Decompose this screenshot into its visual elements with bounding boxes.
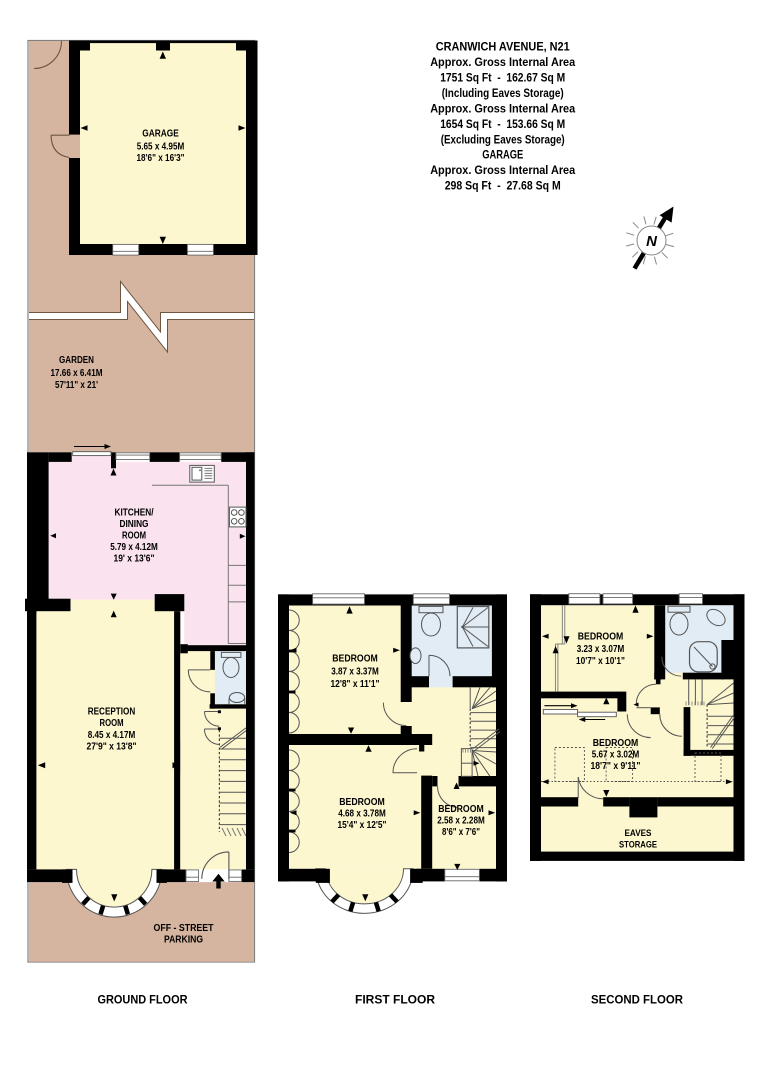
svg-text:5.79 x 4.12M: 5.79 x 4.12M [110,541,158,553]
svg-text:2.58 x 2.28M: 2.58 x 2.28M [437,815,485,827]
svg-text:EAVES: EAVES [625,828,652,839]
svg-text:N: N [646,233,658,250]
svg-text:FIRST FLOOR: FIRST FLOOR [355,993,435,1007]
svg-text:GARAGE: GARAGE [142,128,179,140]
svg-text:GROUND FLOOR: GROUND FLOOR [98,993,188,1007]
svg-text:BEDROOM: BEDROOM [438,803,484,815]
svg-text:5.67 x 3.02M: 5.67 x 3.02M [592,749,640,761]
svg-text:DINING: DINING [120,518,149,530]
svg-text:1654 Sq Ft - 153.66 Sq M: 1654 Sq Ft - 153.66 Sq M [440,119,565,131]
svg-text:Approx. Gross Internal Area: Approx. Gross Internal Area [430,165,576,177]
svg-text:10'7" x 10'1": 10'7" x 10'1" [576,655,625,667]
svg-text:3.87 x 3.37M: 3.87 x 3.37M [331,666,379,678]
svg-text:GARDEN: GARDEN [59,354,94,366]
svg-text:1751 Sq Ft - 162.67 Sq M: 1751 Sq Ft - 162.67 Sq M [440,73,565,85]
svg-text:BEDROOM: BEDROOM [593,737,639,749]
svg-text:12'8" x 11'1": 12'8" x 11'1" [331,678,380,690]
svg-text:Approx. Gross Internal Area: Approx. Gross Internal Area [430,57,576,69]
svg-text:17.66 x 6.41M: 17.66 x 6.41M [51,367,103,379]
svg-text:RECEPTION: RECEPTION [88,706,136,718]
svg-text:15'4" x 12'5": 15'4" x 12'5" [338,819,387,831]
svg-text:BEDROOM: BEDROOM [332,653,378,665]
svg-text:KITCHEN/: KITCHEN/ [115,507,154,519]
svg-text:SECOND FLOOR: SECOND FLOOR [591,993,683,1007]
svg-text:8'6" x 7'6": 8'6" x 7'6" [442,826,480,838]
svg-text:57'11" x 21': 57'11" x 21' [55,379,98,391]
svg-text:5.65 x 4.95M: 5.65 x 4.95M [137,140,185,152]
svg-text:18'7" x 9'11": 18'7" x 9'11" [591,760,641,772]
svg-text:4.68 x 3.78M: 4.68 x 3.78M [338,808,386,820]
svg-text:OFF - STREET: OFF - STREET [154,922,214,934]
svg-text:27'9" x 13'8": 27'9" x 13'8" [87,741,137,753]
svg-text:BEDROOM: BEDROOM [339,796,385,808]
svg-text:ROOM: ROOM [100,717,124,729]
svg-text:298 Sq Ft - 27.68 Sq M: 298 Sq Ft - 27.68 Sq M [445,181,561,193]
svg-text:STORAGE: STORAGE [619,840,657,851]
svg-text:3.23 x 3.07M: 3.23 x 3.07M [577,643,625,655]
svg-text:(Excluding Eaves Storage): (Excluding Eaves Storage) [441,134,565,146]
svg-text:19' x 13'6": 19' x 13'6" [114,553,155,565]
svg-text:ROOM: ROOM [122,530,146,542]
svg-text:18'6" x 16'3": 18'6" x 16'3" [137,152,185,164]
svg-text:BEDROOM: BEDROOM [578,631,624,643]
svg-text:GARAGE: GARAGE [482,150,523,162]
svg-text:PARKING: PARKING [164,934,203,946]
svg-text:CRANWICH AVENUE, N21: CRANWICH AVENUE, N21 [436,42,571,54]
svg-text:8.45 x 4.17M: 8.45 x 4.17M [88,729,136,741]
svg-text:(Including Eaves Storage): (Including Eaves Storage) [442,88,564,100]
svg-text:Approx. Gross Internal Area: Approx. Gross Internal Area [430,103,576,115]
